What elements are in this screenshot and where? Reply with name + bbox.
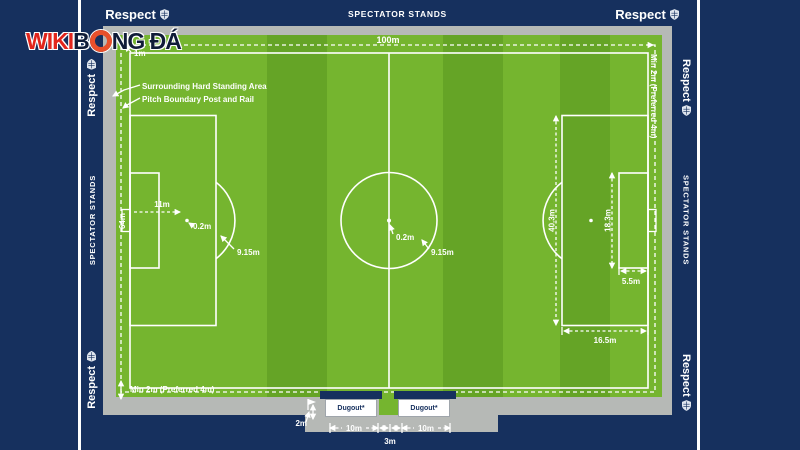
- leader-spot-left: [189, 223, 192, 225]
- goal-area-left: [130, 173, 159, 268]
- label-hard-standing: Surrounding Hard Standing Area: [142, 82, 267, 91]
- label-64m: 64m: [118, 213, 127, 229]
- label-16-5m: 16.5m: [594, 336, 617, 345]
- respect-shield-icon: [670, 9, 679, 20]
- respect-label: Respect: [615, 7, 666, 22]
- corner-flag-icon: [308, 399, 316, 410]
- label-spot-centre: 0.2m: [396, 233, 414, 242]
- label-10m-right: 10m: [418, 424, 434, 433]
- label-18-3m: 18.3m: [604, 209, 613, 232]
- logo-ngda: NG ĐÁ: [112, 28, 181, 54]
- spectator-stands-label: SPECTATOR STANDS: [682, 175, 691, 265]
- label-min-runoff-bottom: Min 2m (Preferred 4m): [130, 385, 215, 394]
- label-5-5m: 5.5m: [622, 277, 640, 286]
- respect-label: Respect: [680, 354, 692, 397]
- spectator-stands-label: SPECTATOR STANDS: [348, 9, 447, 19]
- label-min-runoff-right: Min 2m (Preferred 4m): [649, 54, 658, 139]
- label-40-3m: 40.3m: [548, 209, 557, 232]
- site-logo: WIKIBNG ĐÁ: [26, 28, 181, 55]
- label-100m: 100m: [376, 35, 399, 45]
- spectator-stands-top: SPECTATOR STANDS: [300, 6, 495, 22]
- logo-ball-icon: [90, 30, 112, 52]
- respect-banner-right-bottom: Respect: [674, 340, 698, 425]
- label-11m: 11m: [154, 200, 170, 209]
- respect-shield-icon: [682, 400, 691, 411]
- leader-spot-centre: [390, 225, 393, 234]
- spectator-stands-right: SPECTATOR STANDS: [674, 145, 698, 295]
- label-circle-radius: 9.15m: [431, 248, 454, 257]
- respect-shield-icon: [160, 9, 169, 20]
- respect-shield-icon: [682, 105, 691, 116]
- respect-banner-top-left: Respect: [95, 4, 179, 24]
- pitch-markings-svg: 100m 1m Surrounding Hard Standing Area P…: [100, 28, 676, 417]
- leader-circle-radius: [422, 240, 429, 249]
- respect-banner-top-right: Respect: [605, 4, 689, 24]
- penalty-area-right: [543, 116, 656, 326]
- page-background: Respect SPECTATOR STANDS Respect Respect…: [0, 0, 800, 450]
- respect-label: Respect: [105, 7, 156, 22]
- logo-wiki: WIKI: [26, 28, 73, 54]
- goal-area-right: [619, 173, 648, 268]
- centre-spot: [387, 219, 391, 223]
- respect-label: Respect: [680, 59, 692, 102]
- respect-shield-icon: [88, 351, 97, 362]
- label-3m: 3m: [384, 437, 396, 446]
- respect-label: Respect: [86, 366, 98, 409]
- label-2m: 2m: [295, 419, 307, 428]
- label-10m-left: 10m: [346, 424, 362, 433]
- penalty-spot-right: [589, 219, 593, 223]
- leader-hard-standing: [113, 85, 140, 96]
- label-spot-left: 0.2m: [193, 222, 211, 231]
- label-arc-left: 9.15m: [237, 248, 260, 257]
- respect-banner-right-top: Respect: [674, 30, 698, 145]
- dugout-measures-svg: 2m 10m 3m 10m: [280, 395, 520, 450]
- respect-label: Respect: [86, 74, 98, 117]
- penalty-spot-left: [185, 219, 189, 223]
- respect-shield-icon: [88, 59, 97, 70]
- leader-2m: [306, 412, 309, 422]
- penalty-area-left: [122, 116, 235, 326]
- label-boundary-rail: Pitch Boundary Post and Rail: [142, 95, 254, 104]
- logo-b: B: [73, 28, 89, 54]
- spectator-stands-label: SPECTATOR STANDS: [88, 175, 97, 265]
- leader-boundary-rail: [123, 98, 140, 108]
